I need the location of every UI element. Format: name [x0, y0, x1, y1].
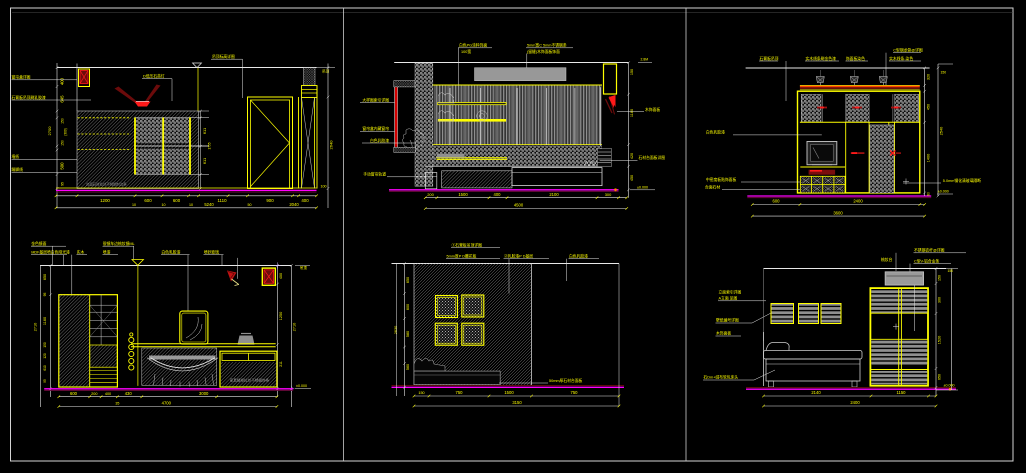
- svg-text:喷漆: 喷漆: [103, 249, 111, 254]
- svg-text:石材台面板详图: 石材台面板详图: [639, 155, 666, 160]
- svg-text:600: 600: [773, 199, 781, 204]
- svg-text:2140: 2140: [811, 390, 821, 395]
- svg-text:(300): (300): [64, 128, 68, 135]
- svg-text:实木线条-染色: 实木线条-染色: [889, 56, 913, 61]
- svg-text:450: 450: [630, 175, 634, 181]
- svg-text:150: 150: [43, 342, 47, 348]
- svg-text:95: 95: [43, 293, 47, 297]
- svg-text:木饰面板: 木饰面板: [645, 107, 660, 112]
- svg-text:5.0mm钢化清玻璃隔断: 5.0mm钢化清玻璃隔断: [943, 178, 981, 183]
- svg-text:中密度板贴饰面板: 中密度板贴饰面板: [706, 177, 737, 182]
- svg-text:(留缝)木饰面板饰面: (留缝)木饰面板饰面: [527, 49, 560, 54]
- svg-text:A立面 见图: A立面 见图: [719, 296, 738, 301]
- svg-text:5mm宽C 5mm不锈钢条: 5mm宽C 5mm不锈钢条: [527, 43, 567, 48]
- svg-text:2100: 2100: [549, 192, 559, 197]
- svg-text:300: 300: [938, 297, 942, 303]
- svg-text:500: 500: [60, 162, 65, 170]
- svg-text:900: 900: [266, 198, 274, 203]
- svg-text:50: 50: [248, 203, 252, 207]
- svg-text:100宽: 100宽: [461, 49, 471, 54]
- svg-text:100: 100: [321, 184, 327, 188]
- svg-text:300: 300: [605, 192, 612, 197]
- svg-text:600: 600: [406, 304, 410, 310]
- svg-text:95: 95: [61, 182, 65, 186]
- svg-text:壁纸编号详图: 壁纸编号详图: [716, 318, 739, 323]
- svg-text:4500: 4500: [514, 203, 524, 208]
- svg-text:1150: 1150: [896, 390, 906, 395]
- svg-text:150: 150: [61, 140, 65, 146]
- svg-text:2540: 2540: [940, 127, 944, 135]
- svg-text:1160: 1160: [43, 317, 47, 325]
- svg-text:150: 150: [61, 118, 65, 124]
- svg-text:2700: 2700: [47, 126, 52, 136]
- svg-text:踢脚线: 踢脚线: [12, 167, 24, 172]
- svg-text:600: 600: [144, 198, 152, 203]
- svg-text:白色乳胶漆: 白色乳胶漆: [370, 138, 389, 143]
- svg-text:150: 150: [418, 391, 424, 395]
- svg-text:5240: 5240: [204, 202, 214, 207]
- svg-text:C型V-铝合金条: C型V-铝合金条: [914, 258, 940, 263]
- svg-text:400: 400: [279, 273, 283, 279]
- svg-text:3150: 3150: [512, 400, 522, 405]
- svg-text:①石膏板吊顶详图: ①石膏板吊顶详图: [452, 242, 483, 247]
- svg-text:银镜车边梳妆镜ML: 银镜车边梳妆镜ML: [103, 241, 135, 246]
- svg-text:不锈钢衣杆@详图: 不锈钢衣杆@详图: [914, 248, 945, 253]
- svg-text:150: 150: [941, 71, 947, 75]
- svg-text:吊顶标高详图: 吊顶标高详图: [212, 54, 235, 59]
- svg-text:喷砂玻璃: 喷砂玻璃: [204, 249, 219, 254]
- svg-text:400: 400: [105, 392, 111, 396]
- svg-text:2040: 2040: [289, 202, 299, 207]
- svg-text:台面石材: 台面石材: [705, 184, 720, 189]
- svg-text:150: 150: [630, 69, 634, 75]
- svg-text:实木: 实木: [77, 249, 85, 254]
- svg-text:400: 400: [301, 198, 309, 203]
- svg-text:611: 611: [202, 157, 207, 164]
- svg-text:梳妆台: 梳妆台: [881, 257, 893, 262]
- svg-text:C型钢龙骨@详图: C型钢龙骨@详图: [893, 48, 923, 53]
- svg-text:150: 150: [938, 275, 942, 281]
- svg-text:台面石材拉丝不锈钢封边条: 台面石材拉丝不锈钢封边条: [86, 182, 127, 187]
- svg-text:35: 35: [115, 402, 119, 406]
- svg-text:10: 10: [132, 203, 136, 207]
- svg-text:200: 200: [91, 392, 97, 396]
- svg-text:2640: 2640: [329, 140, 334, 150]
- svg-text:木饰面板: 木饰面板: [716, 331, 731, 336]
- svg-text:400: 400: [494, 192, 502, 197]
- svg-text:石膏板吊顶刷乳胶漆: 石膏板吊顶刷乳胶漆: [12, 95, 46, 100]
- svg-text:2630: 2630: [394, 326, 398, 334]
- svg-text:1755: 1755: [208, 142, 212, 149]
- svg-text:200: 200: [427, 192, 434, 197]
- svg-text:实木线条刷金色漆: 实木线条刷金色漆: [806, 56, 837, 61]
- svg-text:645: 645: [60, 95, 65, 103]
- svg-text:石Dm+绒布软包床头: 石Dm+绒布软包床头: [704, 375, 739, 380]
- svg-text:2710: 2710: [292, 323, 296, 331]
- svg-text:吊顶: 吊顶: [322, 69, 330, 74]
- svg-text:②乳胶漆P D基层: ②乳胶漆P D基层: [504, 253, 533, 258]
- svg-text:650: 650: [406, 277, 410, 283]
- svg-text:窗帘盒详图: 窗帘盒详图: [12, 75, 31, 80]
- svg-text:1500: 1500: [458, 192, 468, 197]
- svg-text:金色镜面: 金色镜面: [31, 241, 46, 246]
- svg-text:3000: 3000: [199, 391, 209, 396]
- svg-text:600: 600: [173, 198, 181, 203]
- svg-text:大样图索引详图: 大样图索引详图: [362, 98, 389, 103]
- svg-text:750: 750: [571, 390, 579, 395]
- svg-text:1250: 1250: [279, 312, 283, 320]
- svg-text:420: 420: [630, 153, 634, 159]
- svg-text:立面索引详图: 立面索引详图: [719, 290, 742, 295]
- svg-text:580: 580: [406, 331, 410, 337]
- svg-text:1200: 1200: [100, 198, 110, 203]
- svg-text:2.8M: 2.8M: [641, 58, 649, 62]
- svg-text:1400: 1400: [927, 154, 931, 162]
- svg-text:1180: 1180: [630, 109, 634, 117]
- svg-text:墙纸: 墙纸: [12, 154, 20, 159]
- svg-text:D低压石英灯: D低压石英灯: [143, 74, 165, 79]
- svg-text:750: 750: [456, 390, 464, 395]
- svg-text:50mm厚石材台面板: 50mm厚石材台面板: [549, 378, 583, 383]
- svg-text:10: 10: [189, 203, 193, 207]
- svg-text:1500: 1500: [504, 390, 514, 395]
- svg-text:白色PG涂料饰面: 白色PG涂料饰面: [459, 43, 487, 48]
- svg-text:60: 60: [927, 192, 931, 196]
- svg-text:白色乳胶漆: 白色乳胶漆: [706, 129, 725, 134]
- svg-text:95: 95: [43, 379, 47, 383]
- svg-text:白色乳胶漆: 白色乳胶漆: [161, 249, 180, 254]
- svg-text:±0.000: ±0.000: [938, 190, 949, 194]
- svg-text:窗帘盒内藏窗帘: 窗帘盒内藏窗帘: [362, 126, 389, 131]
- svg-text:3600: 3600: [833, 210, 843, 215]
- svg-text:手动窗帘轨道: 手动窗帘轨道: [363, 172, 386, 177]
- svg-text:1520: 1520: [938, 336, 942, 344]
- svg-text:600: 600: [70, 391, 78, 396]
- svg-text:120: 120: [43, 353, 47, 359]
- svg-text:饰面板染色: 饰面板染色: [846, 56, 865, 61]
- svg-text:150: 150: [948, 269, 954, 273]
- svg-text:560: 560: [406, 364, 410, 370]
- svg-text:±0.000: ±0.000: [637, 185, 648, 189]
- svg-text:211: 211: [279, 361, 283, 367]
- svg-text:±0.000: ±0.000: [944, 383, 955, 387]
- svg-text:400: 400: [60, 77, 65, 85]
- svg-text:10: 10: [162, 203, 166, 207]
- svg-text:白色乳胶漆: 白色乳胶漆: [569, 253, 588, 258]
- svg-text:4700: 4700: [162, 401, 172, 406]
- svg-text:650: 650: [938, 374, 942, 380]
- svg-text:430: 430: [125, 391, 133, 396]
- svg-text:610: 610: [43, 365, 47, 371]
- svg-text:611: 611: [202, 127, 207, 134]
- svg-text:1110: 1110: [217, 198, 227, 203]
- svg-text:±0.000: ±0.000: [296, 384, 307, 388]
- svg-text:2710: 2710: [34, 323, 38, 331]
- svg-text:450: 450: [927, 104, 931, 110]
- svg-text:石膏板吊顶: 石膏板吊顶: [760, 56, 779, 61]
- svg-text:MDF基层喷白色哑光漆: MDF基层喷白色哑光漆: [31, 249, 70, 254]
- svg-text:650: 650: [43, 274, 47, 280]
- svg-text:2400: 2400: [853, 199, 863, 204]
- svg-text:家具矮柜拉丝不锈钢饰条: 家具矮柜拉丝不锈钢饰条: [230, 378, 270, 383]
- svg-text:2400: 2400: [850, 400, 860, 405]
- svg-text:5mm厚P D雕花板: 5mm厚P D雕花板: [447, 253, 477, 258]
- svg-text:320: 320: [927, 74, 931, 80]
